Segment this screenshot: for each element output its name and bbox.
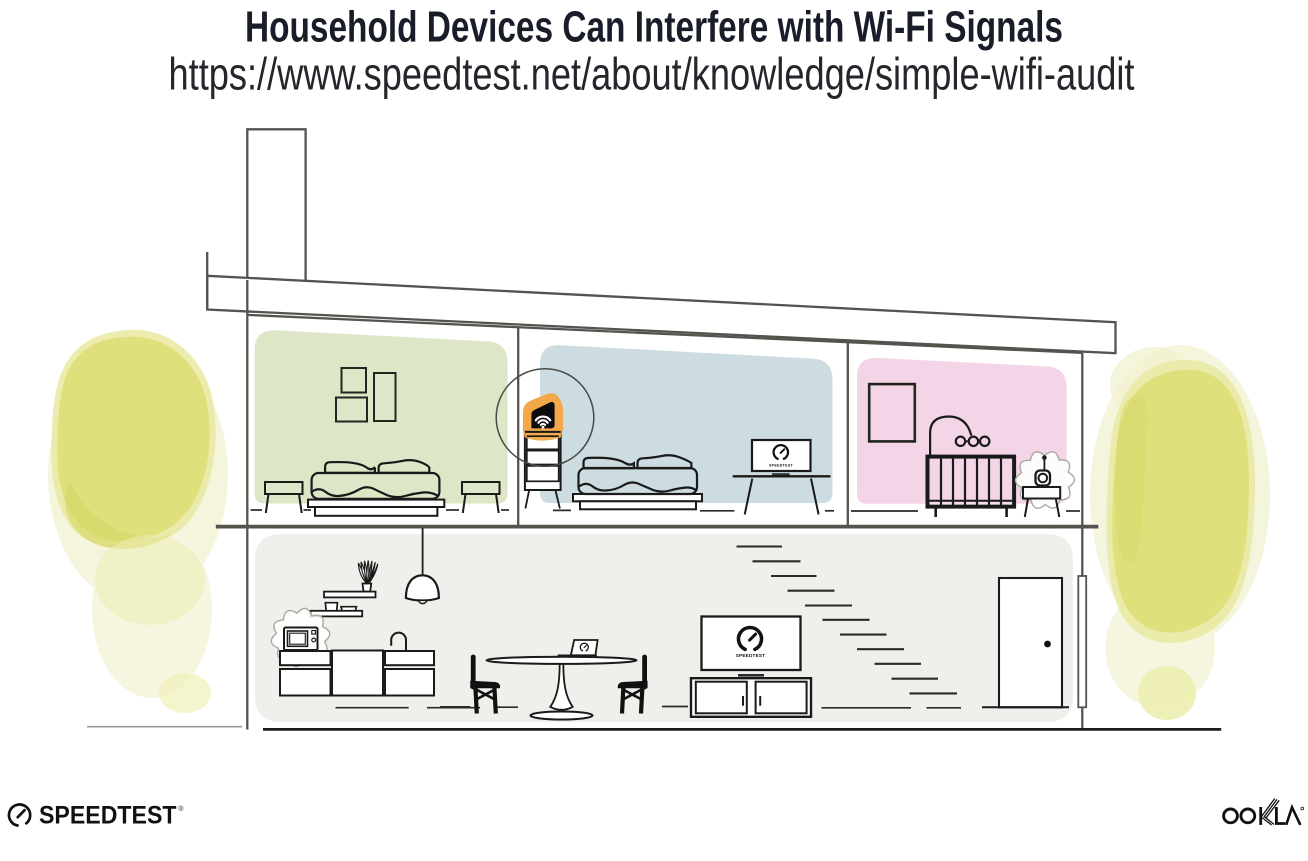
- svg-text:®: ®: [178, 805, 184, 813]
- svg-text:Household Devices Can Interfer: Household Devices Can Interfere with Wi-…: [245, 3, 1063, 52]
- svg-text:https://www.speedtest.net/abou: https://www.speedtest.net/about/knowledg…: [169, 49, 1135, 100]
- svg-text:SPEEDTEST: SPEEDTEST: [769, 463, 794, 467]
- svg-text:SPEEDTEST: SPEEDTEST: [736, 653, 766, 658]
- svg-text:SPEEDTEST: SPEEDTEST: [39, 803, 177, 830]
